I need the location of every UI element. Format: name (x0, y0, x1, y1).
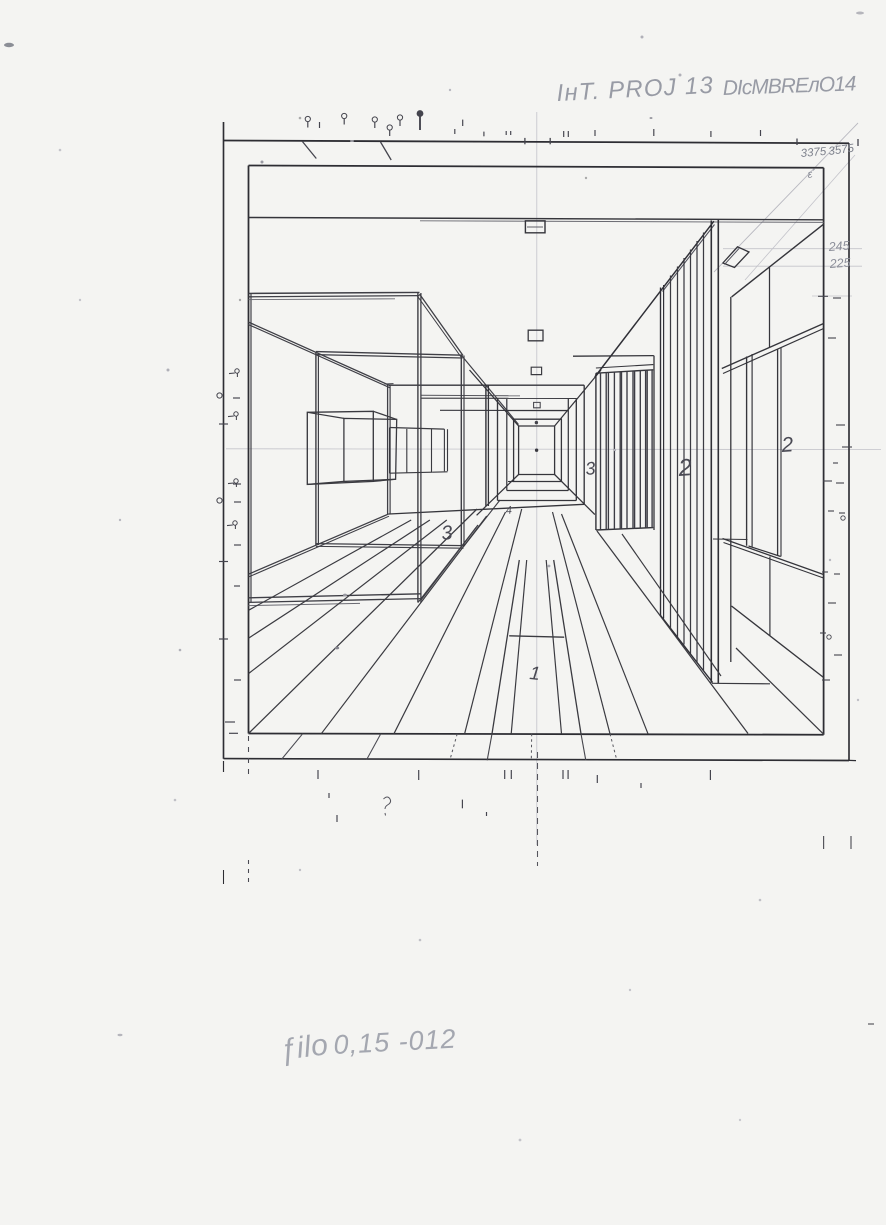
svg-text:2: 2 (677, 454, 693, 482)
svg-text:2: 2 (780, 433, 795, 457)
svg-text:3: 3 (440, 522, 453, 545)
svg-text:245: 245 (827, 239, 850, 254)
svg-text:ƒilo: ƒilo (278, 1028, 330, 1067)
svg-text:4: 4 (505, 505, 512, 517)
svg-text:1: 1 (528, 663, 541, 685)
svg-text:DIсMBREлO14: DIсMBREлO14 (722, 72, 856, 100)
svg-text:3: 3 (584, 458, 596, 479)
svg-text:225: 225 (828, 256, 851, 271)
svg-text:3375: 3375 (800, 146, 827, 160)
